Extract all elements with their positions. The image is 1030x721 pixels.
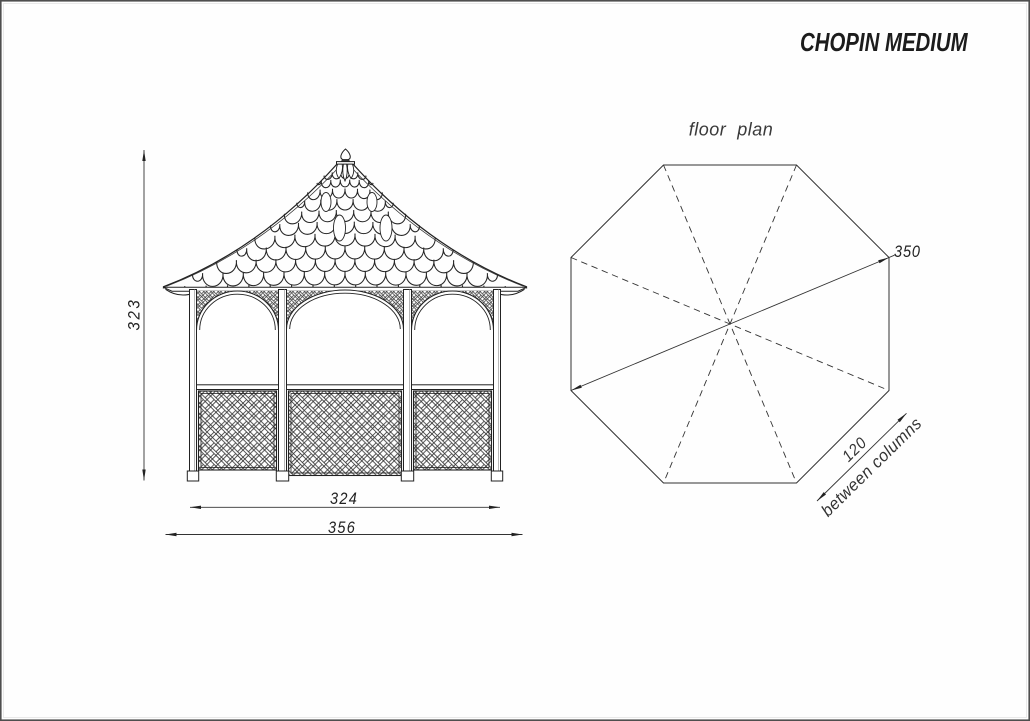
svg-text:323: 323 <box>126 298 144 331</box>
svg-text:350: 350 <box>894 243 921 261</box>
svg-text:CHOPIN MEDIUM: CHOPIN MEDIUM <box>800 28 968 57</box>
svg-text:356: 356 <box>328 519 356 537</box>
svg-text:floor plan: floor plan <box>689 120 774 140</box>
svg-text:324: 324 <box>330 490 358 508</box>
